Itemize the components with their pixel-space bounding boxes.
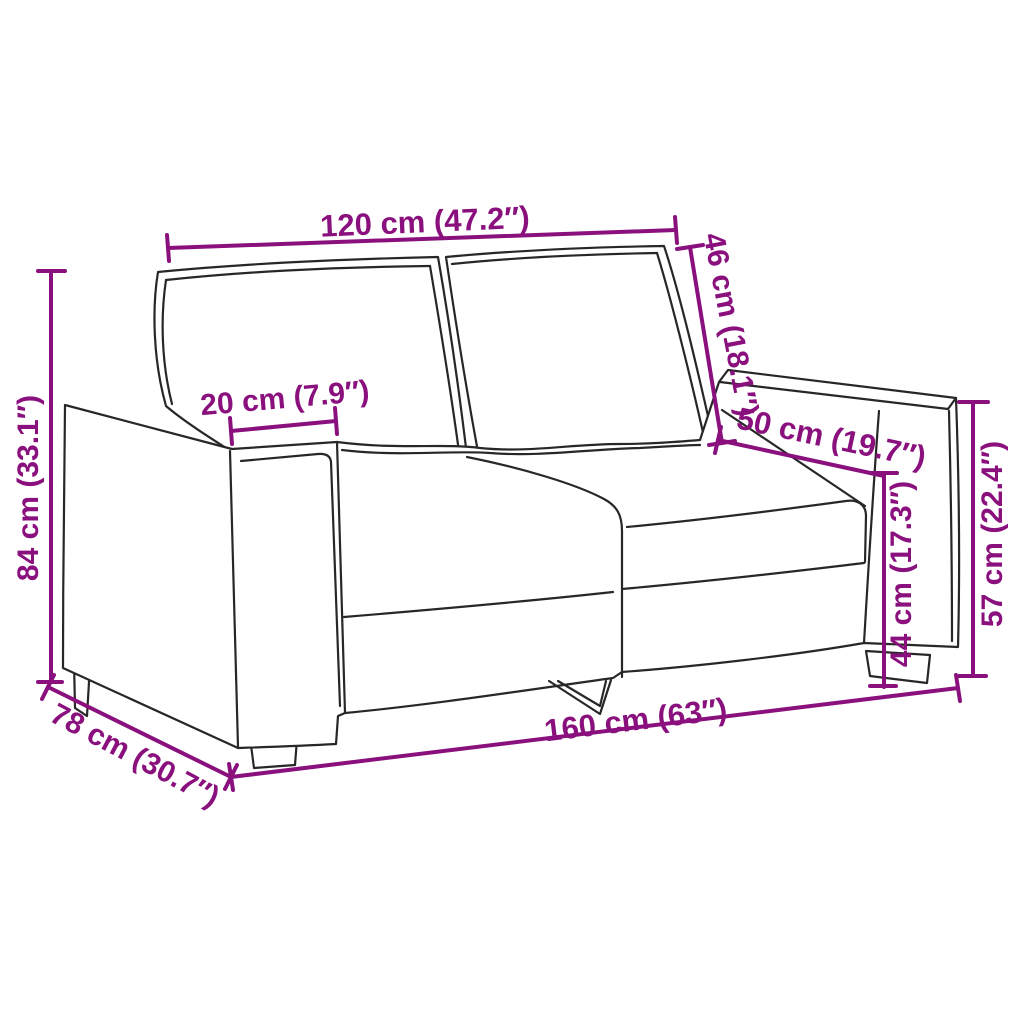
dimension-overall-height: 84 cm (33.1″) (12, 271, 65, 682)
sofa-dimension-svg: 120 cm (47.2″) 20 cm (7.9″) 46 cm (18.1″… (0, 0, 1024, 1024)
dimension-label-backrest-height: 46 cm (18.1″) (697, 230, 765, 419)
sofa-drawing (63, 246, 959, 768)
dimension-label-armrest-height: 57 cm (22.4″) (976, 441, 1009, 627)
dimension-diagram: 120 cm (47.2″) 20 cm (7.9″) 46 cm (18.1″… (0, 0, 1024, 1024)
back-cushion-left (154, 257, 467, 462)
dimension-label-overall-width: 160 cm (63″) (542, 691, 729, 748)
dimension-label-seat-height: 44 cm (17.3″) (885, 481, 918, 667)
dimension-armrest-height: 57 cm (22.4″) (959, 402, 1009, 676)
back-cushion-right (446, 246, 713, 452)
dimension-label-overall-height: 84 cm (33.1″) (12, 395, 45, 581)
